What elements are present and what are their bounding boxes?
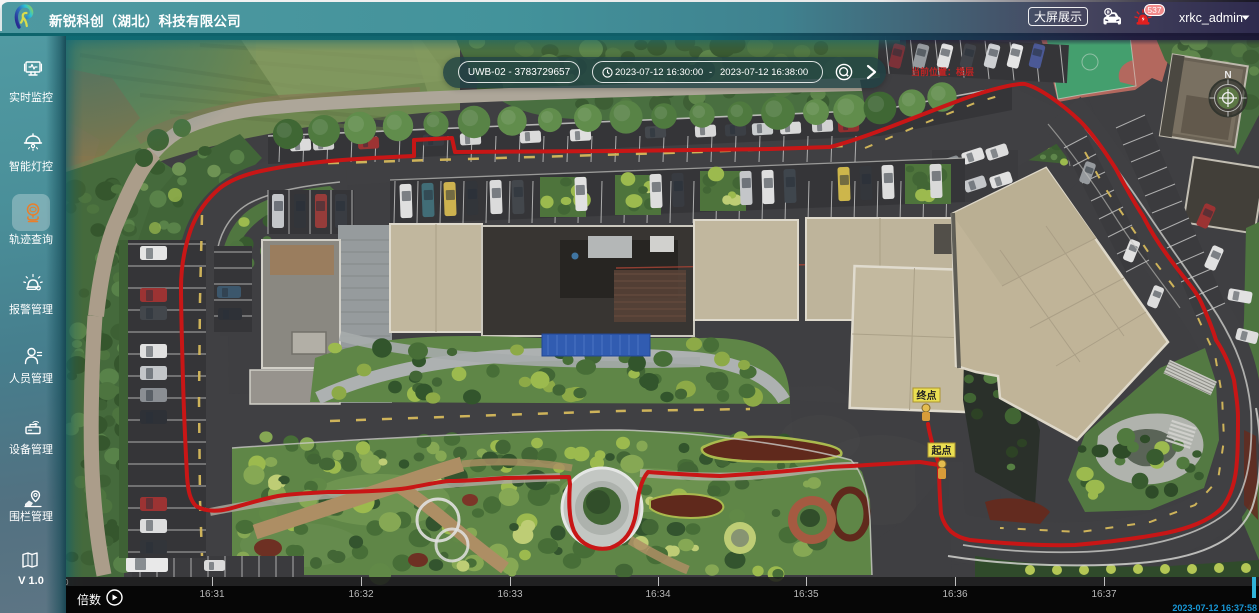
svg-text:起点: 起点	[931, 444, 952, 457]
svg-text:N: N	[1224, 70, 1231, 81]
svg-text:当前位置：楼层: 当前位置：楼层	[911, 66, 974, 77]
svg-text:终点: 终点	[917, 389, 937, 402]
